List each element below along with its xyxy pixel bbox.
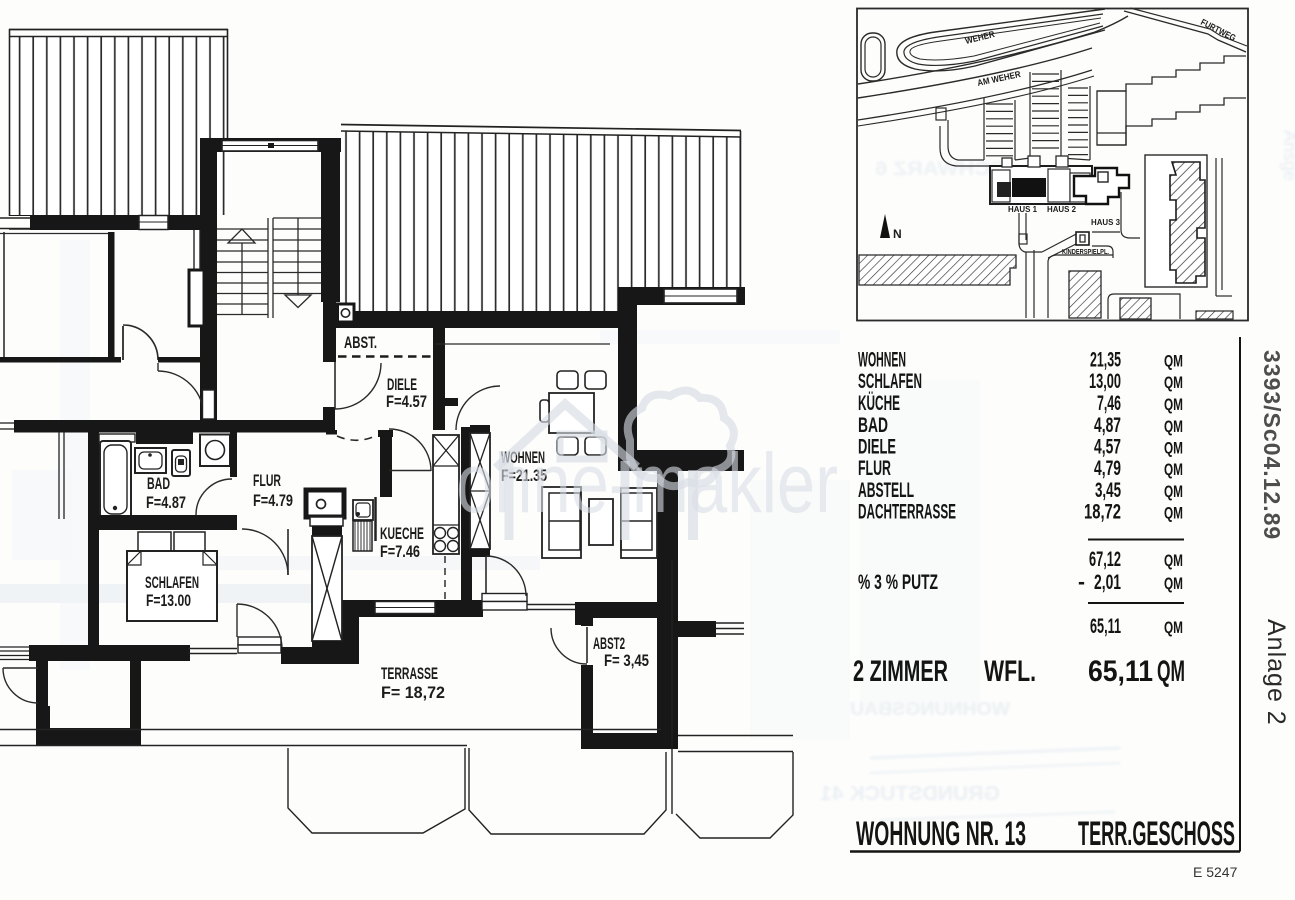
svg-text:21,35: 21,35 bbox=[1090, 349, 1121, 372]
svg-text:TERRASSE: TERRASSE bbox=[381, 665, 438, 683]
svg-text:F=7.46: F=7.46 bbox=[380, 543, 420, 561]
svg-text:WOHNUNGSBAU: WOHNUNGSBAU bbox=[850, 699, 1010, 719]
svg-text:% 3 % PUTZ: % 3 % PUTZ bbox=[858, 571, 938, 594]
svg-text:QM: QM bbox=[1164, 574, 1183, 593]
svg-text:WOHNEN: WOHNEN bbox=[858, 349, 906, 372]
svg-text:QM: QM bbox=[1164, 504, 1183, 523]
svg-text:DIELE: DIELE bbox=[858, 436, 896, 459]
svg-text:QM: QM bbox=[1157, 655, 1185, 688]
svg-text:QM: QM bbox=[1164, 460, 1183, 479]
svg-text:3,45: 3,45 bbox=[1095, 479, 1121, 502]
svg-text:DACHTERRASSE: DACHTERRASSE bbox=[858, 501, 956, 524]
svg-text:GRUNDSTUCK 41: GRUNDSTUCK 41 bbox=[820, 783, 1000, 805]
svg-text:SCHLAFEN: SCHLAFEN bbox=[858, 370, 922, 393]
svg-text:BAD: BAD bbox=[858, 414, 888, 437]
svg-text:2,01: 2,01 bbox=[1094, 571, 1121, 594]
svg-text:4,57: 4,57 bbox=[1094, 436, 1121, 459]
svg-text:F=4.87: F=4.87 bbox=[146, 494, 186, 512]
svg-text:67,12: 67,12 bbox=[1089, 548, 1121, 571]
svg-text:65,11: 65,11 bbox=[1090, 615, 1121, 638]
svg-text:HAUS 3: HAUS 3 bbox=[1091, 217, 1120, 227]
svg-text:Anlage 2: Anlage 2 bbox=[1262, 619, 1290, 726]
svg-text:3393/Sc04.12.89: 3393/Sc04.12.89 bbox=[1259, 350, 1285, 540]
svg-text:F=4.57: F=4.57 bbox=[386, 393, 427, 411]
svg-text:QM: QM bbox=[1164, 439, 1183, 458]
svg-text:4,79: 4,79 bbox=[1094, 457, 1121, 480]
svg-text:FLUR: FLUR bbox=[253, 472, 281, 490]
svg-text:7,46: 7,46 bbox=[1097, 392, 1121, 415]
svg-text:-: - bbox=[1078, 571, 1085, 594]
svg-text:QM: QM bbox=[1164, 417, 1183, 436]
svg-text:13,00: 13,00 bbox=[1089, 370, 1121, 393]
svg-text:FLUR: FLUR bbox=[858, 457, 891, 480]
svg-text:ABST2: ABST2 bbox=[593, 635, 625, 653]
svg-text:QM: QM bbox=[1164, 618, 1183, 637]
svg-text:F=4.79: F=4.79 bbox=[253, 492, 293, 510]
svg-text:18,72: 18,72 bbox=[1084, 501, 1121, 524]
svg-text:KUECHE: KUECHE bbox=[380, 525, 424, 543]
svg-text:SCHWARZ 6: SCHWARZ 6 bbox=[875, 159, 1005, 180]
svg-text:4,87: 4,87 bbox=[1094, 414, 1121, 437]
svg-text:F= 18,72: F= 18,72 bbox=[381, 684, 445, 702]
svg-text:ohne-makler: ohne-makler bbox=[456, 436, 838, 530]
svg-text:ABST.: ABST. bbox=[344, 334, 377, 352]
svg-text:ABSTELL: ABSTELL bbox=[858, 479, 914, 502]
svg-text:65,11: 65,11 bbox=[1088, 655, 1153, 688]
svg-text:N: N bbox=[893, 227, 902, 241]
svg-text:2 ZIMMER: 2 ZIMMER bbox=[853, 655, 948, 688]
svg-text:QM: QM bbox=[1164, 551, 1183, 570]
svg-text:QM: QM bbox=[1164, 352, 1183, 371]
svg-text:SCHLAFEN: SCHLAFEN bbox=[145, 574, 199, 592]
svg-text:WOHNUNG NR. 13: WOHNUNG NR. 13 bbox=[856, 815, 1026, 853]
svg-text:DIELE: DIELE bbox=[387, 376, 417, 394]
svg-text:QM: QM bbox=[1164, 395, 1183, 414]
svg-text:HAUS 2: HAUS 2 bbox=[1047, 204, 1076, 214]
svg-text:WFL.: WFL. bbox=[984, 655, 1036, 688]
svg-text:F= 3,45: F= 3,45 bbox=[604, 652, 649, 670]
svg-text:HAUS 1: HAUS 1 bbox=[1008, 204, 1037, 214]
svg-text:TERR.GESCHOSS: TERR.GESCHOSS bbox=[1078, 815, 1235, 853]
svg-text:QM: QM bbox=[1164, 373, 1183, 392]
svg-text:E 5247: E 5247 bbox=[1193, 864, 1238, 880]
svg-text:F=13.00: F=13.00 bbox=[146, 592, 191, 610]
svg-text:KINDERSPIELPL.: KINDERSPIELPL. bbox=[1062, 249, 1109, 256]
svg-text:QM: QM bbox=[1164, 482, 1183, 501]
svg-text:Ansge: Ansge bbox=[1280, 130, 1295, 181]
svg-text:KÜCHE: KÜCHE bbox=[858, 392, 900, 415]
svg-text:BAD: BAD bbox=[147, 475, 170, 493]
